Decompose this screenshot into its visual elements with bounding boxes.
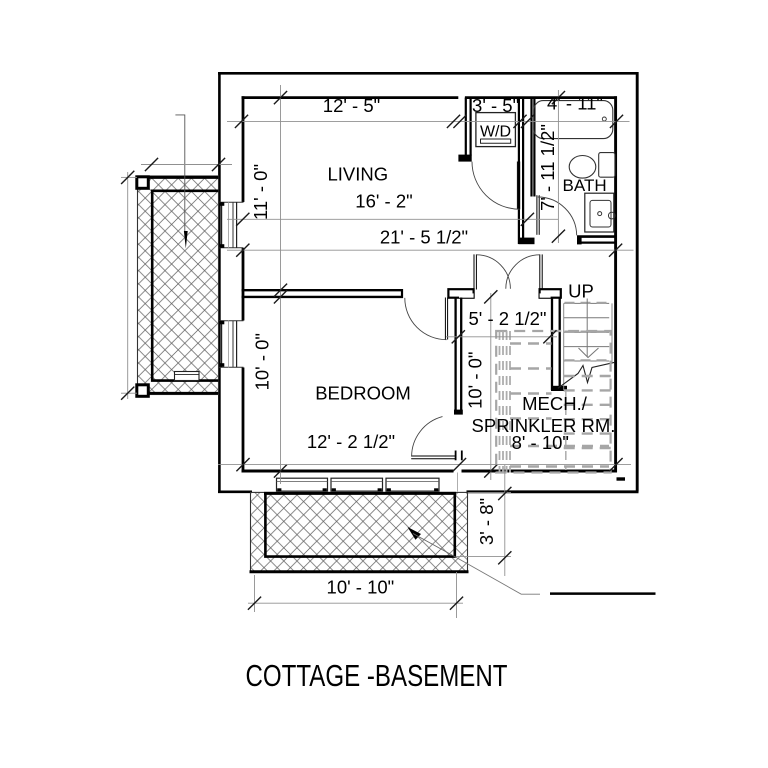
svg-text:UP: UP	[568, 281, 594, 302]
svg-text:BEDROOM: BEDROOM	[315, 382, 411, 403]
svg-text:MECH./: MECH./	[522, 393, 588, 414]
svg-text:10' - 0": 10' - 0"	[465, 351, 486, 408]
svg-text:3' - 5": 3' - 5"	[472, 95, 519, 116]
svg-text:11' - 0": 11' - 0"	[250, 164, 271, 220]
svg-text:COTTAGE -BASEMENT: COTTAGE -BASEMENT	[246, 658, 508, 693]
svg-text:4' - 11": 4' - 11"	[547, 93, 603, 114]
svg-text:W/D: W/D	[480, 124, 511, 141]
svg-text:16' - 2": 16' - 2"	[355, 190, 412, 211]
svg-text:LIVING: LIVING	[327, 163, 388, 184]
svg-text:12' - 5": 12' - 5"	[323, 95, 380, 116]
svg-text:5' - 2 1/2": 5' - 2 1/2"	[469, 308, 547, 329]
svg-text:10' - 10": 10' - 10"	[327, 577, 395, 598]
svg-text:7' - 11 1/2": 7' - 11 1/2"	[537, 124, 558, 211]
svg-text:21' - 5 1/2": 21' - 5 1/2"	[380, 227, 468, 248]
svg-text:12' - 2 1/2": 12' - 2 1/2"	[307, 431, 395, 452]
svg-text:8' - 10": 8' - 10"	[512, 432, 569, 453]
svg-text:BATH: BATH	[563, 176, 607, 195]
svg-text:10' - 0": 10' - 0"	[252, 333, 273, 390]
svg-text:3' - 8": 3' - 8"	[476, 498, 497, 545]
